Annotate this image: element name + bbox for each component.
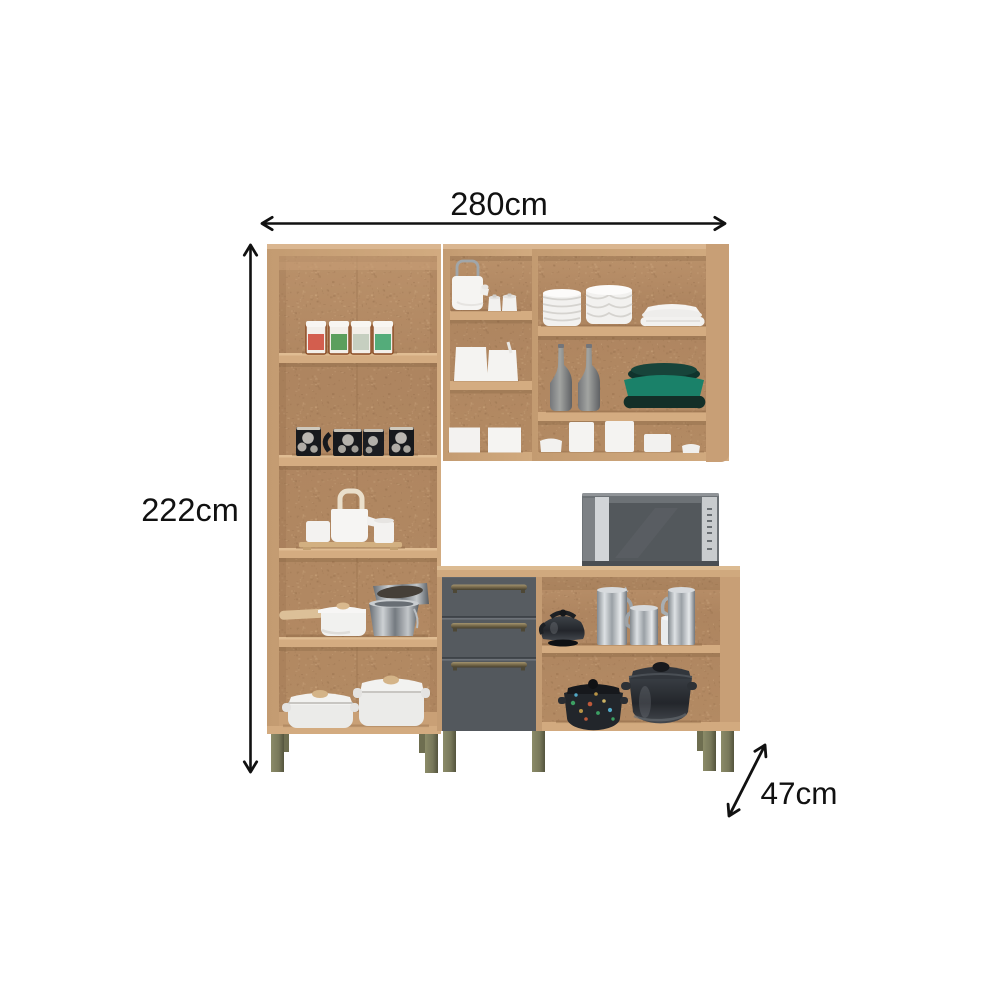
svg-text:280cm: 280cm [450,186,548,222]
svg-text:47cm: 47cm [760,775,837,811]
svg-text:222cm: 222cm [141,492,239,528]
